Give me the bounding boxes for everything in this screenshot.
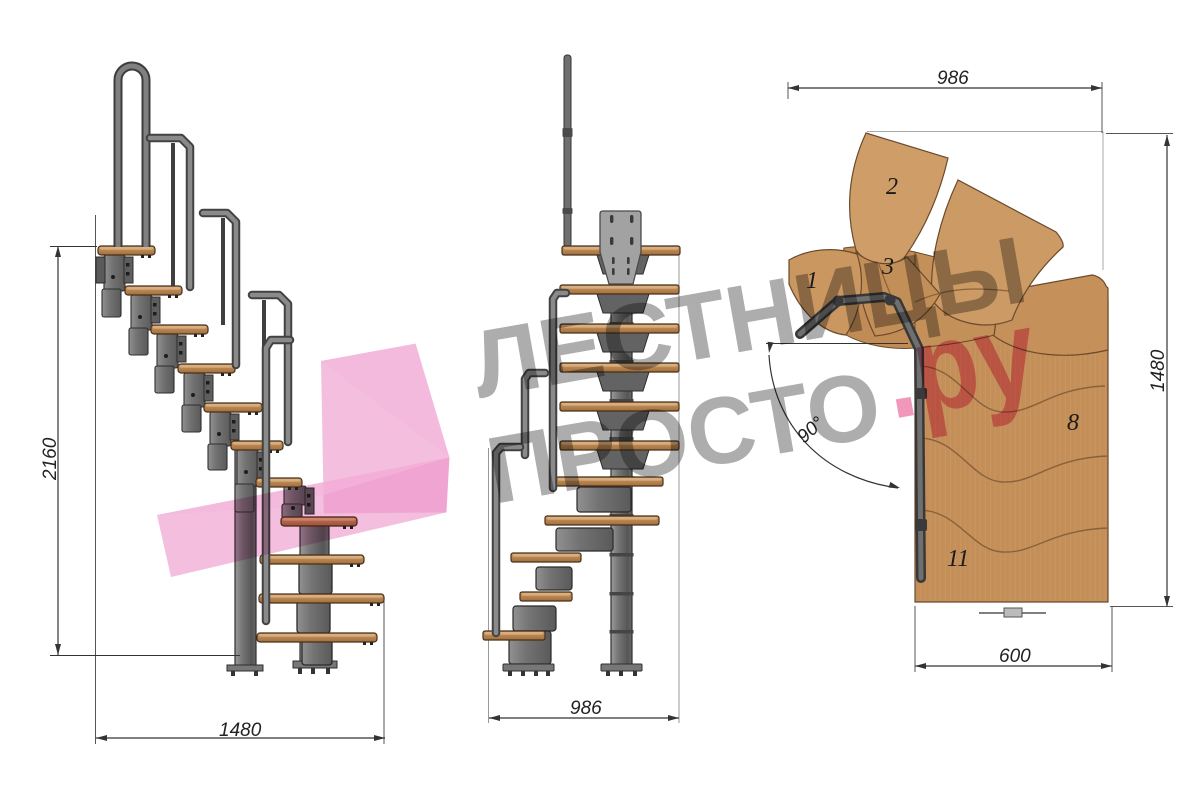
svg-text:8: 8	[1067, 410, 1079, 436]
svg-text:.ру: .ру	[873, 282, 1047, 445]
svg-text:986: 986	[570, 698, 602, 719]
svg-text:1480: 1480	[1148, 349, 1169, 392]
svg-text:1480: 1480	[219, 720, 262, 741]
svg-text:2: 2	[886, 174, 898, 200]
svg-text:11: 11	[947, 546, 969, 572]
svg-text:986: 986	[937, 68, 969, 89]
svg-text:2160: 2160	[40, 437, 61, 481]
svg-text:600: 600	[999, 646, 1031, 667]
